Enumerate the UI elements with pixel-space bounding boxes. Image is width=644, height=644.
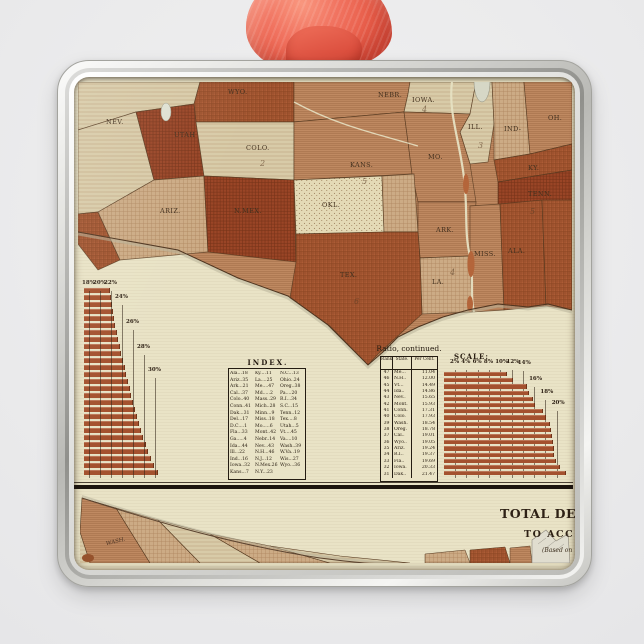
- state-new-mexico: [204, 176, 296, 262]
- state-label: TEX.: [340, 271, 357, 279]
- grid-line: [144, 355, 145, 478]
- state-label: ALA.: [507, 247, 525, 255]
- index-entry: Miss..18: [255, 417, 279, 424]
- product-photo-scene: NEV.UTAHCOLO.WYO.NEBR.IOWA.KANS.MO.ILL.I…: [0, 0, 644, 644]
- ratio-bar: [84, 365, 125, 370]
- plate-divider-thick-rule: [74, 485, 573, 489]
- state-label: ARK.: [435, 226, 454, 234]
- grid-line: [111, 291, 112, 478]
- axis-tick-label: 6%: [473, 359, 482, 365]
- grid-line: [100, 291, 101, 478]
- scale-bar: [444, 453, 554, 457]
- scale-bar: [444, 378, 513, 382]
- scale-bar: [444, 446, 554, 450]
- scale-bar: [444, 459, 556, 463]
- index-entry: Wyo...36: [280, 463, 304, 470]
- state-label: MO.: [428, 153, 443, 161]
- ratio-table-body: 47Me...11.0446N.H..12.0045Vt...14.4944Id…: [381, 370, 437, 478]
- ratio-header-state: State.: [393, 357, 412, 369]
- state-georgia-sliver: [542, 200, 572, 310]
- axis-tick-label: 26%: [126, 319, 139, 325]
- index-entry: Vt....45: [280, 430, 304, 437]
- state-label: NEV.: [106, 118, 124, 126]
- left-bar-chart: 18%20%22%24%26%28%30%: [84, 282, 244, 482]
- state-label: OH.: [548, 114, 562, 122]
- bottom-map-subtitle: TO ACC: [524, 529, 574, 540]
- axis-tick-label: 24%: [115, 294, 128, 300]
- index-entry: Mont..42: [255, 430, 279, 437]
- scale-bar: [444, 397, 533, 401]
- ratio-bar: [84, 456, 151, 461]
- index-entry: Nebr..14: [255, 437, 279, 444]
- axis-tick-label: 16%: [529, 376, 542, 382]
- state-label: LA.: [432, 278, 444, 286]
- bottom-state-patch: [510, 546, 532, 563]
- ratio-rank: 31: [381, 472, 393, 478]
- index-entry: Oreg..38: [280, 384, 304, 391]
- ratio-row: 31Dak..21.47: [381, 472, 437, 478]
- index-entry: Ill...22: [230, 450, 254, 457]
- index-column-1: Ala...18Ariz..35Ark...21Cal...37Colo..40…: [230, 371, 254, 477]
- scale-bar: [444, 384, 527, 388]
- index-entry: Ala...18: [230, 371, 254, 378]
- axis-tick-label: 8%: [484, 359, 493, 365]
- vintage-map-print: NEV.UTAHCOLO.WYO.NEBR.IOWA.KANS.MO.ILL.I…: [74, 77, 575, 570]
- index-column-3: N.C...13Ohio..24Oreg..38Pa....20R.I...34…: [280, 371, 304, 477]
- index-entry: Va....10: [280, 437, 304, 444]
- index-title: INDEX.: [228, 358, 308, 367]
- index-entry: Ky....11: [255, 371, 279, 378]
- state-indiana: [492, 82, 530, 160]
- ratio-bar: [84, 435, 143, 440]
- ratio-title: Ratio, continued.: [374, 344, 444, 353]
- ratio-header-rank: Rank: [381, 357, 393, 369]
- index-entry: Conn..41: [230, 404, 254, 411]
- second-map-sliver: [80, 492, 570, 563]
- scale-bar: [444, 471, 566, 475]
- ratio-state: Dak..: [393, 472, 412, 478]
- scale-bar: [444, 428, 551, 432]
- index-entry: N.Y...23: [255, 470, 279, 477]
- bottom-map-title: TOTAL DEAT: [500, 506, 575, 521]
- state-rank-numeral: 4: [421, 105, 427, 114]
- state-label: MISS.: [474, 250, 496, 258]
- grid-line: [133, 330, 134, 478]
- metal-ornament-frame: NEV.UTAHCOLO.WYO.NEBR.IOWA.KANS.MO.ILL.I…: [57, 60, 592, 587]
- state-alabama: [500, 200, 546, 310]
- ratio-header-row: Rank State. Per Cent.: [381, 357, 437, 370]
- index-entry: Del...17: [230, 417, 254, 424]
- frame-bright-lip: NEV.UTAHCOLO.WYO.NEBR.IOWA.KANS.MO.ILL.I…: [69, 72, 580, 575]
- state-rank-numeral: 5: [530, 207, 535, 216]
- index-entry: Mich..28: [255, 404, 279, 411]
- axis-tick-label: 4%: [461, 359, 470, 365]
- ratio-bar: [84, 393, 131, 398]
- state-rank-numeral: 4: [449, 268, 455, 277]
- state-label: TENN.: [528, 190, 552, 198]
- state-label: ILL.: [468, 123, 483, 131]
- scale-bar: [444, 434, 552, 438]
- scale-bar: [444, 415, 546, 419]
- index-entry: Colo..40: [230, 397, 254, 404]
- great-salt-lake: [161, 103, 171, 121]
- ratio-bar: [84, 372, 126, 377]
- index-entry: N.C...13: [280, 371, 304, 378]
- bottom-state-patch: [470, 547, 510, 563]
- index-column-2: Ky....11La....25Me....47Md.....2Mass..29…: [255, 371, 279, 477]
- scale-bar: [444, 403, 535, 407]
- index-entry: Mass..29: [255, 397, 279, 404]
- index-entry: Kans...7: [230, 470, 254, 477]
- frame-inner-ring: NEV.UTAHCOLO.WYO.NEBR.IOWA.KANS.MO.ILL.I…: [65, 68, 584, 579]
- grid-line: [122, 305, 123, 478]
- state-label: COLO.: [246, 144, 270, 152]
- index-entry: N.Mex.26: [255, 463, 279, 470]
- state-label: KY.: [528, 164, 539, 172]
- axis-tick-label: 28%: [137, 344, 150, 350]
- index-entry: Tex....8: [280, 417, 304, 424]
- index-entry: R.I...34: [280, 397, 304, 404]
- state-rank-numeral: 6: [354, 297, 359, 306]
- ratio-bar: [84, 449, 148, 454]
- scale-bar: [444, 409, 543, 413]
- state-label: WYO.: [228, 88, 248, 96]
- state-label: IND-: [504, 125, 521, 133]
- state-label: KANS.: [350, 161, 373, 169]
- state-rank-numeral: 3: [478, 141, 483, 150]
- index-entry: Me....47: [255, 384, 279, 391]
- index-entry: Fla...33: [230, 430, 254, 437]
- axis-tick-label: 30%: [148, 367, 161, 373]
- grid-line: [89, 291, 90, 478]
- axis-tick-label: 14%: [518, 360, 531, 366]
- state-label: IOWA.: [412, 96, 435, 104]
- axis-tick-label: 20%: [552, 400, 565, 406]
- scale-bar: [444, 440, 553, 444]
- bottom-map-note: (Based on: [542, 547, 572, 554]
- axis-tick-label: 18%: [540, 389, 553, 395]
- index-entry: Ga.....4: [230, 437, 254, 444]
- state-colorado: [196, 122, 294, 180]
- state-label: N.MEX.: [234, 207, 262, 215]
- bottom-state-patch: [425, 550, 470, 563]
- ratio-percent: 21.47: [412, 472, 437, 478]
- index-entry: N.H...46: [255, 450, 279, 457]
- index-entry: Ark...21: [230, 384, 254, 391]
- state-mississippi: [470, 204, 504, 312]
- state-rank-numeral: 2: [259, 159, 265, 168]
- state-louisiana: [420, 256, 472, 314]
- scale-bar: [444, 422, 550, 426]
- ratio-bar: [84, 288, 110, 293]
- ratio-bar: [84, 442, 146, 447]
- state-rank-numeral: 5: [362, 177, 367, 186]
- plate-divider-thin-rule: [74, 482, 573, 483]
- index-entry: S.C...15: [280, 404, 304, 411]
- ratio-bar: [84, 400, 133, 405]
- ratio-box: Rank State. Per Cent. 47Me...11.0446N.H.…: [380, 356, 438, 482]
- scale-bar: [444, 372, 507, 376]
- index-entry: Iowa..32: [230, 463, 254, 470]
- state-label: NEBR.: [378, 91, 402, 99]
- ratio-bar: [84, 407, 135, 412]
- bottom-brown-patch: [82, 554, 94, 562]
- scale-bar: [444, 465, 560, 469]
- index-entry: W.Va..19: [280, 450, 304, 457]
- axis-tick-label: 2%: [450, 359, 459, 365]
- state-label: OKL.: [322, 201, 340, 209]
- state-kansas: [294, 112, 412, 180]
- scale-bar-chart: SCALE: 2%4%6%8%10%12%14%16%18%20%: [444, 352, 573, 482]
- state-label: UTAH: [174, 131, 195, 139]
- index-box: Ala...18Ariz..35Ark...21Cal...37Colo..40…: [228, 368, 306, 480]
- state-indian-territory: [382, 174, 418, 232]
- axis-tick-label: 22%: [104, 280, 117, 286]
- river-alluvium: [463, 174, 469, 194]
- grid-line: [155, 378, 156, 478]
- state-label: ARIZ.: [159, 207, 181, 215]
- ratio-header-percent: Per Cent.: [412, 357, 437, 369]
- scale-bar: [444, 391, 529, 395]
